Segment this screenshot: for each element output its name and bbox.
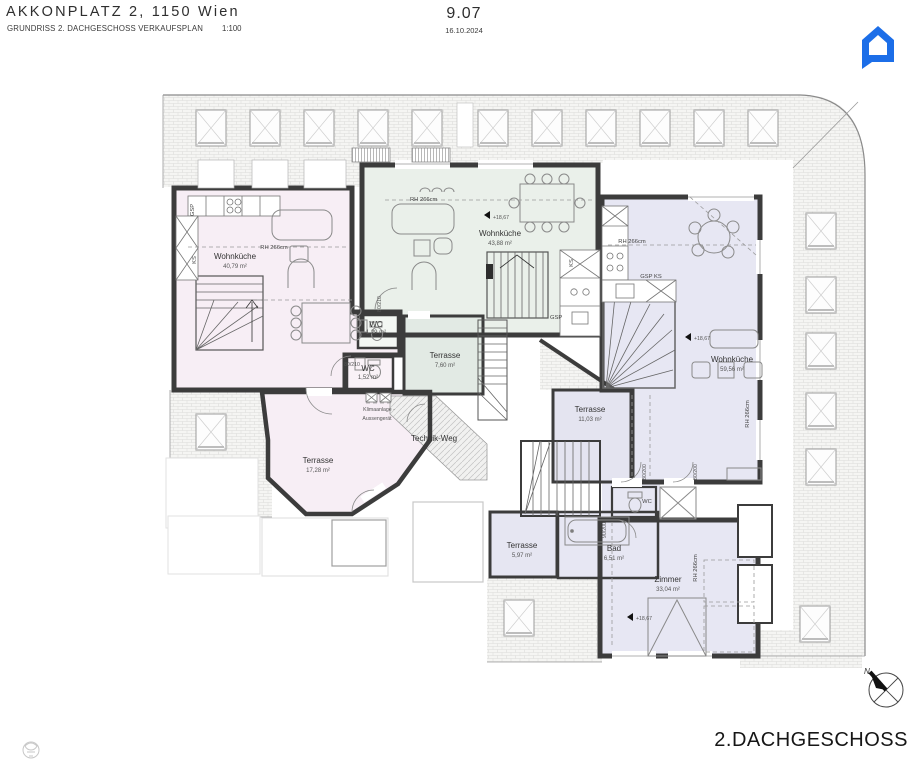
room-area: 40,79 m² [223, 264, 247, 270]
vienna-emblem-icon [23, 742, 39, 758]
gsp-label: GSP [550, 315, 562, 321]
room-label: Wohnküche [214, 252, 257, 261]
room-area: 11,03 m² [578, 417, 601, 423]
rh-label: RH 266cm [618, 239, 646, 245]
door-size-label: 80/210 [344, 362, 360, 368]
klima-label: Aussengerät [362, 416, 392, 422]
room-label: Terrasse [430, 351, 461, 360]
room-label: WC [642, 499, 652, 505]
room-area: 17,28 m² [306, 468, 330, 474]
compass-north-label: N [864, 667, 870, 676]
room-label: WC [369, 320, 383, 329]
floor-label: 2.DACHGESCHOSS [714, 729, 908, 752]
room-area: 1,52 m² [358, 375, 378, 381]
room-label: Bad [607, 544, 621, 553]
door-size-label: 80/200 [693, 464, 699, 480]
door-size-label: 80/210 [377, 296, 383, 312]
gsp-label: GSP [190, 204, 196, 216]
room-label: Terrasse [575, 405, 606, 414]
floorplan-drawing: Wohnküche 40,79 m² Wohnküche 43,88 m² Wo… [0, 0, 920, 764]
room-label: Zimmer [654, 575, 681, 584]
rh-label: RH 266cm [745, 400, 751, 428]
ks-label: KS [192, 256, 198, 264]
room-label: WC [361, 364, 375, 373]
rh-label: RH 266cm [693, 554, 699, 582]
room-label: Terrasse [507, 541, 538, 550]
level-label: +18,67 [636, 616, 652, 622]
rh-label: RH 266cm [260, 245, 288, 251]
level-label: +18,67 [694, 336, 710, 342]
room-label: Wohnküche [479, 229, 522, 238]
floorplan-page: AKKONPLATZ 2, 1150 Wien GRUNDRISS 2. DAC… [0, 0, 920, 764]
door-size-label: 80/200 [642, 464, 648, 480]
room-area: 33,04 m² [656, 587, 680, 593]
level-label: +18,67 [493, 215, 509, 221]
room-area: 59,56 m² [720, 367, 744, 373]
technik-weg-label: Technik-Weg [411, 434, 457, 443]
room-area: 6,51 m² [604, 556, 624, 562]
gsp-ks-label: GSP KS [640, 274, 662, 280]
room-area: 43,88 m² [488, 241, 512, 247]
room-area: 7,60 m² [435, 363, 455, 369]
rh-label: RH 266cm [410, 197, 438, 203]
room-label: Terrasse [303, 456, 334, 465]
room-label: Wohnküche [711, 355, 754, 364]
room-area: 5,97 m² [512, 553, 532, 559]
door-size-label: 90/200 [602, 522, 608, 538]
ks-label: KS [569, 259, 575, 267]
klima-label: Klimaanlage - [363, 407, 395, 413]
room-area: 1,29 m² [366, 330, 386, 336]
north-compass-icon: N [864, 667, 903, 707]
